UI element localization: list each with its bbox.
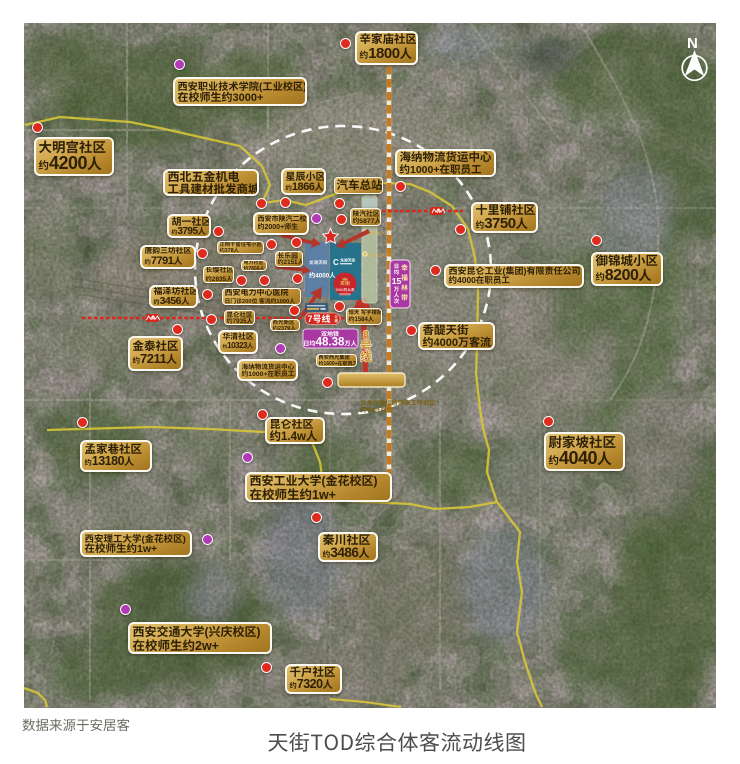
svg-text:7号线: 7号线 xyxy=(307,312,330,325)
svg-text:约400+岗位: 约400+岗位 xyxy=(360,405,394,414)
svg-text:地铁出入口: 地铁出入口 xyxy=(369,253,389,259)
svg-text:C: C xyxy=(333,258,339,267)
svg-text:龙湖天街: 龙湖天街 xyxy=(340,258,355,264)
svg-text:约4000人: 约4000人 xyxy=(309,271,336,280)
svg-text:林: 林 xyxy=(401,282,408,292)
svg-text:N: N xyxy=(687,35,698,52)
svg-text:地铁出入口: 地铁出入口 xyxy=(369,231,389,237)
svg-text:日均48.38万人: 日均48.38万人 xyxy=(303,337,357,349)
svg-text:均: 均 xyxy=(394,268,400,276)
svg-text:天街: 天街 xyxy=(340,280,350,287)
svg-text:次: 次 xyxy=(394,297,400,305)
svg-text:福: 福 xyxy=(401,272,408,282)
svg-text:幸: 幸 xyxy=(401,262,408,272)
svg-text:带: 带 xyxy=(401,292,408,302)
svg-text:龙湖天街: 龙湖天街 xyxy=(309,260,328,266)
svg-text:5054万人次: 5054万人次 xyxy=(336,287,355,293)
svg-text:线: 线 xyxy=(360,348,372,365)
